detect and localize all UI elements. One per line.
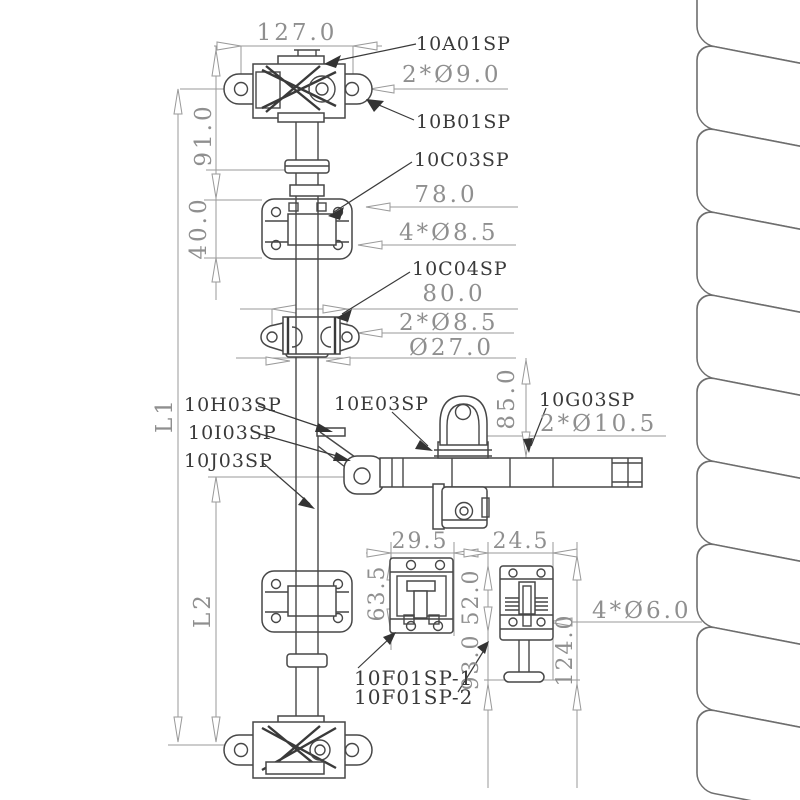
dim-2xd105-label: 2*Ø10.5 <box>540 411 657 437</box>
dim-127-label: 127.0 <box>257 20 338 46</box>
dim-245-label: 24.5 <box>493 529 550 554</box>
dim-80-label: 80.0 <box>422 281 485 307</box>
bottom-cam-plate <box>266 762 324 774</box>
dim-4xd85-label: 4*Ø8.5 <box>399 220 499 246</box>
dim-L2-label: L2 <box>190 592 216 628</box>
dim-635-label: 63.5 <box>365 565 390 622</box>
handle-arm <box>380 458 642 487</box>
dim-295-label: 29.5 <box>392 529 449 554</box>
dim-d27-label: Ø27.0 <box>409 335 494 361</box>
dim-2xd85-label: 2*Ø8.5 <box>399 310 499 336</box>
dim-4xd6-label: 4*Ø6.0 <box>592 598 692 624</box>
keeper-2 <box>500 566 553 682</box>
dim-85-label: 85.0 <box>494 366 520 429</box>
dim-124-label: 124.0 <box>553 614 578 687</box>
door-panel <box>697 0 800 800</box>
handle-hub <box>344 456 384 494</box>
wing-bracket <box>261 317 359 354</box>
keeper-1 <box>390 558 453 633</box>
rod-band <box>290 185 324 196</box>
keeper1-latch-bar <box>407 581 435 591</box>
part-label-10A01SP: 10A01SP <box>416 33 511 55</box>
part-label-10F01SP-2: 10F01SP-2 <box>354 685 473 709</box>
keeper2-tongue <box>519 582 535 614</box>
guide-bracket-lower <box>262 571 352 632</box>
dim-2xd9-label: 2*Ø9.0 <box>402 62 502 88</box>
part-label-10B01SP: 10B01SP <box>416 111 511 133</box>
top-cam-tab-lower <box>278 113 324 122</box>
lock-rod <box>285 50 329 738</box>
part-label-10C04SP: 10C04SP <box>412 258 508 280</box>
part-label-10I03SP: 10I03SP <box>188 422 277 444</box>
part-label-10E03SP: 10E03SP <box>334 393 429 415</box>
dim-78-label: 78.0 <box>414 182 477 208</box>
bottom-cam-assembly <box>224 716 372 778</box>
keeper1-latch-post <box>414 591 427 618</box>
rod-collar-lower <box>287 654 327 667</box>
wing-center-block <box>283 317 340 354</box>
wing-right <box>340 323 359 351</box>
top-cam-assembly <box>224 56 372 122</box>
dim-52-label: 52.0 <box>459 569 484 626</box>
keeper2-foot <box>504 672 544 682</box>
wing-left <box>261 323 283 351</box>
guide-bracket-upper <box>262 199 352 259</box>
part-label-10H03SP: 10H03SP <box>184 394 282 416</box>
dim-91-label: 91.0 <box>191 103 217 166</box>
dim-40-label: 40.0 <box>186 196 212 259</box>
part-label-10C03SP: 10C03SP <box>414 149 510 171</box>
technical-drawing-canvas: 127.0 10A01SP 2*Ø9.0 10B01SP 10C03SP 78.… <box>0 0 800 800</box>
dim-L1-label: L1 <box>152 397 178 433</box>
part-label-10G03SP: 10G03SP <box>539 389 635 411</box>
part-label-10J03SP: 10J03SP <box>184 450 273 472</box>
